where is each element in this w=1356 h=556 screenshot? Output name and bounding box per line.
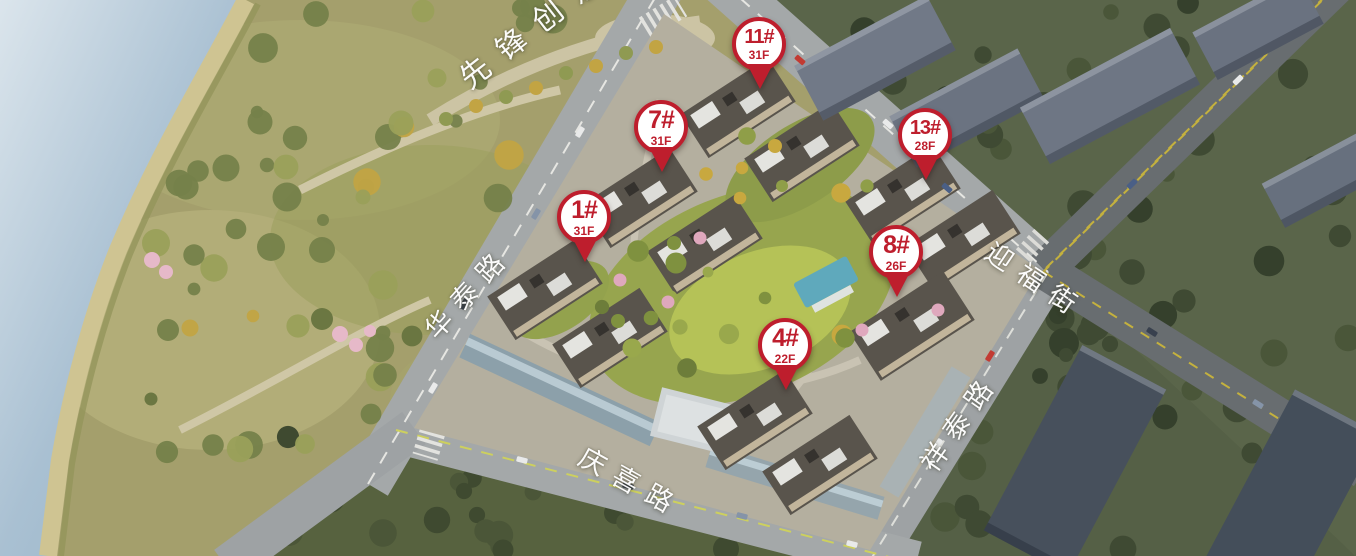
- building-pin-8[interactable]: 8#26F: [869, 225, 925, 297]
- masterplan-map: 1#31F4#22F7#31F8#26F11#31F13#28F先锋创意华泰路迎…: [0, 0, 1356, 556]
- pin-floor-count: 31F: [749, 49, 770, 61]
- pin-floor-count: 22F: [775, 353, 796, 365]
- building-pin-7[interactable]: 7#31F: [634, 100, 690, 172]
- pin-building-number: 4#: [772, 326, 798, 351]
- pin-building-number: 8#: [883, 233, 909, 258]
- pin-tail: [884, 272, 910, 297]
- pin-tail: [649, 147, 675, 172]
- pin-tail: [913, 155, 939, 180]
- building-pin-4[interactable]: 4#22F: [758, 318, 814, 390]
- building-pin-13[interactable]: 13#28F: [898, 108, 954, 180]
- pin-building-number: 1#: [571, 198, 597, 223]
- pin-circle[interactable]: 11#31F: [732, 17, 786, 71]
- site-plan-render: [0, 0, 1356, 556]
- pin-circle[interactable]: 7#31F: [634, 100, 688, 154]
- pin-building-number: 13#: [910, 118, 940, 138]
- pin-building-number: 11#: [744, 27, 773, 47]
- pin-floor-count: 31F: [574, 225, 595, 237]
- pin-circle[interactable]: 8#26F: [869, 225, 923, 279]
- pin-tail: [773, 365, 799, 390]
- building-pin-1[interactable]: 1#31F: [557, 190, 613, 262]
- pin-circle[interactable]: 4#22F: [758, 318, 812, 372]
- pin-circle[interactable]: 1#31F: [557, 190, 611, 244]
- pin-floor-count: 31F: [651, 135, 672, 147]
- pin-circle[interactable]: 13#28F: [898, 108, 952, 162]
- pin-floor-count: 28F: [915, 140, 936, 152]
- pin-tail: [572, 237, 598, 262]
- pin-building-number: 7#: [648, 108, 674, 133]
- pin-tail: [747, 64, 773, 89]
- pin-floor-count: 26F: [886, 260, 907, 272]
- building-pin-11[interactable]: 11#31F: [732, 17, 788, 89]
